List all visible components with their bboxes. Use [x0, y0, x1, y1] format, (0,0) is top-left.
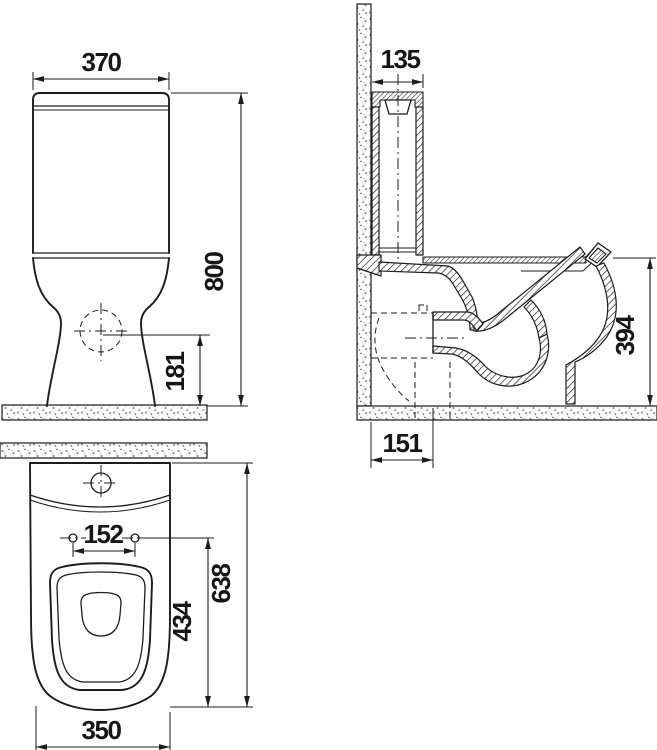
dim-370-label: 370: [82, 47, 122, 77]
bowl-front-left-outline: [33, 258, 61, 406]
dim-638-label: 638: [206, 564, 236, 604]
side-view: 135 394 151: [357, 4, 657, 468]
dim-350-label: 350: [82, 715, 122, 745]
cistern-rear-wall-section: [372, 107, 379, 255]
front-view: 370 800 181: [2, 47, 248, 420]
cistern-front-edge-arc: [30, 495, 170, 507]
trap-riser-section: [524, 300, 547, 338]
dim-394-label: 394: [610, 315, 640, 356]
wall-hatch: [357, 4, 371, 406]
bowl-back-shell-section: [566, 263, 616, 404]
hidden-outlet-curve: [375, 318, 409, 401]
fixing-clip-mark: [419, 305, 427, 311]
outlet-top-wall-section: [433, 312, 483, 331]
technical-drawing: 370 800 181: [0, 0, 657, 750]
plan-wall-hatch: [0, 443, 207, 458]
front-floor-hatch: [2, 405, 207, 420]
dim-135-label: 135: [381, 44, 421, 74]
cistern-front-edge-arc-2: [30, 500, 170, 512]
cistern-front-wall-section: [416, 107, 423, 255]
seat-inner-outline: [57, 572, 145, 682]
trap-sump-section: [433, 334, 549, 386]
dim-800-label: 800: [199, 252, 229, 292]
water-area-outline: [81, 593, 121, 637]
side-floor-hatch: [357, 406, 657, 420]
plan-view: 152 638 434 350: [0, 443, 253, 750]
cistern-front-outline: [33, 93, 169, 253]
dim-151-label: 151: [383, 428, 423, 458]
seat-outer-outline: [50, 563, 152, 690]
dim-434-label: 434: [167, 601, 197, 642]
drawing-sheet: 370 800 181: [0, 0, 657, 750]
dim-152-label: 152: [84, 519, 124, 549]
dim-181-label: 181: [160, 352, 190, 392]
